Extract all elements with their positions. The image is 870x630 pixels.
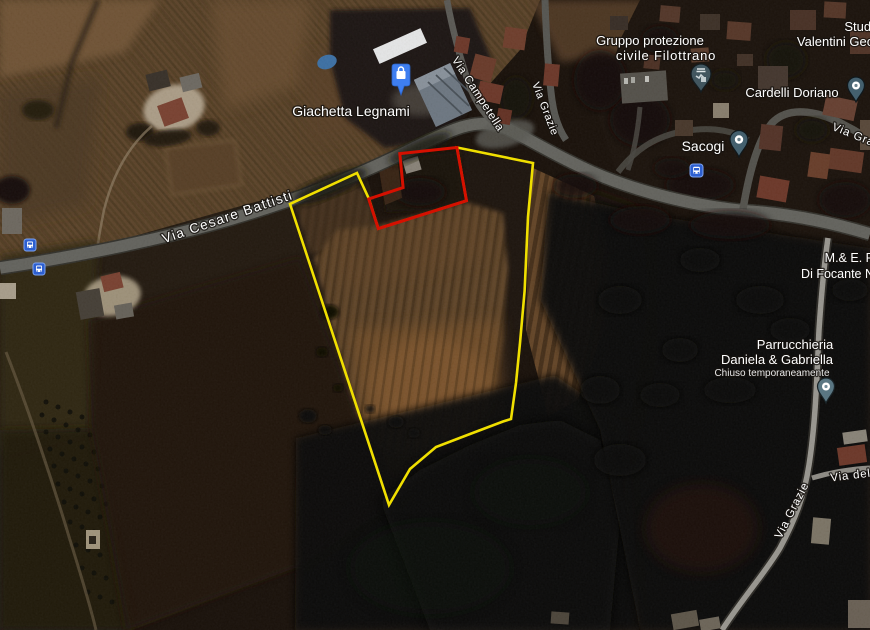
- svg-text:M.& E. P: M.& E. P: [825, 251, 870, 265]
- svg-text:civile Filottrano: civile Filottrano: [616, 48, 716, 63]
- svg-text:Parrucchieria: Parrucchieria: [757, 337, 834, 352]
- svg-text:Daniela & Gabriella: Daniela & Gabriella: [721, 352, 834, 367]
- svg-text:Di Focante N: Di Focante N: [801, 267, 870, 281]
- svg-text:Chiuso temporaneamente: Chiuso temporaneamente: [714, 368, 830, 379]
- svg-text:Valentini Geo: Valentini Geo: [797, 34, 870, 49]
- svg-text:Gruppo protezione: Gruppo protezione: [596, 33, 704, 48]
- svg-text:Sacogi: Sacogi: [682, 138, 725, 154]
- svg-text:Giachetta Legnami: Giachetta Legnami: [292, 103, 410, 119]
- svg-text:Studi: Studi: [844, 19, 870, 34]
- svg-text:Cardelli Doriano: Cardelli Doriano: [745, 85, 838, 100]
